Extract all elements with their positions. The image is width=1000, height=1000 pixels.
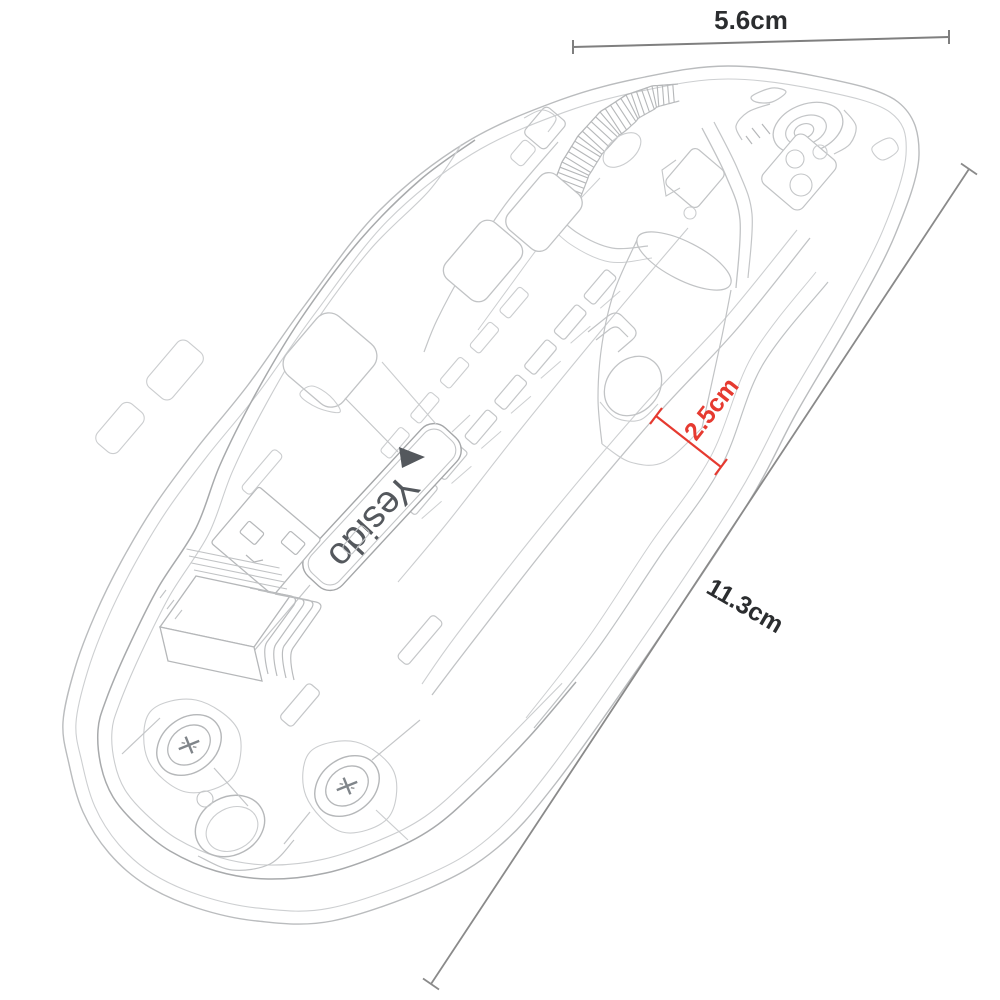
svg-text:5.6cm: 5.6cm (714, 5, 788, 35)
svg-text:11.3cm: 11.3cm (702, 573, 788, 639)
